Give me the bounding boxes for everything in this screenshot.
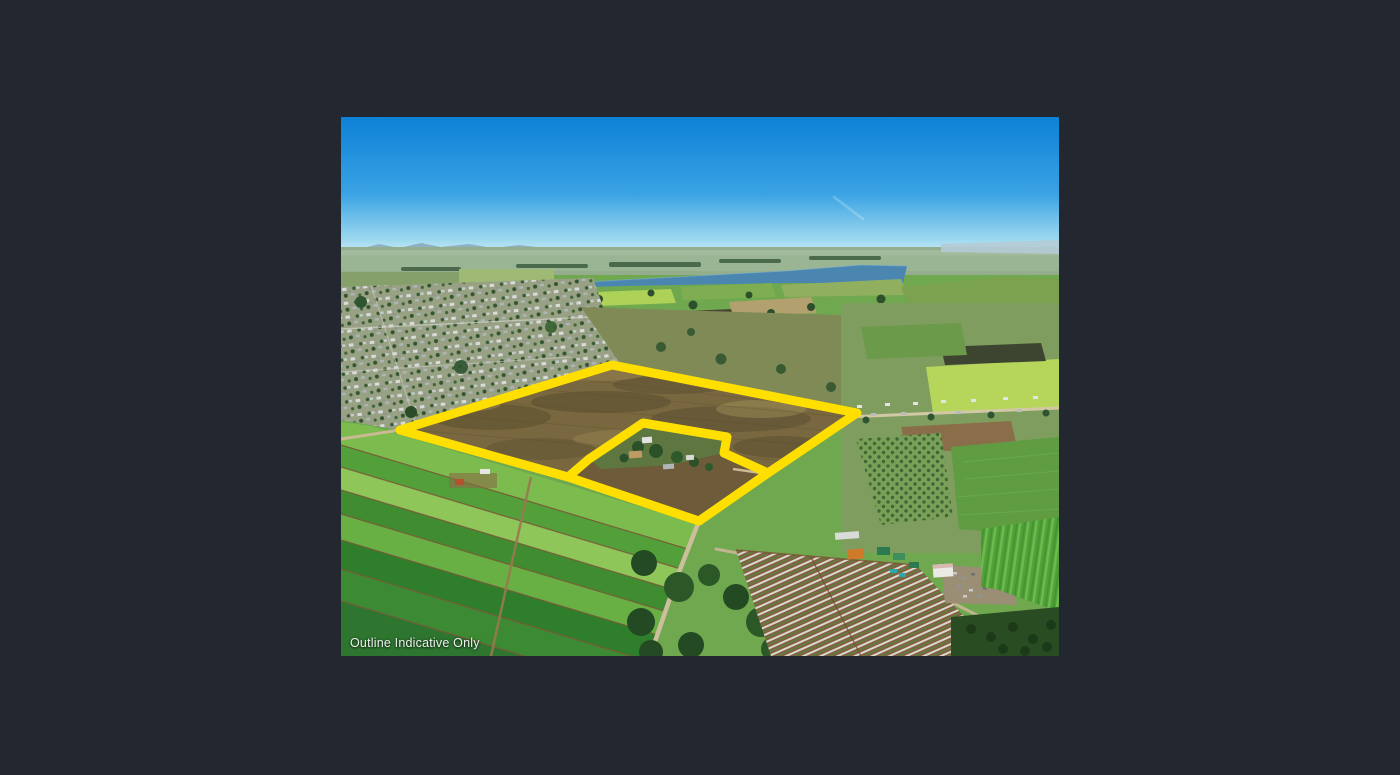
aerial-photo: Outline Indicative Only — [341, 117, 1059, 656]
outline-disclaimer-label: Outline Indicative Only — [350, 637, 480, 650]
page-background: Outline Indicative Only — [0, 0, 1400, 775]
east-farmland — [841, 303, 1059, 553]
sky — [341, 117, 1059, 257]
aerial-photo-graphic — [341, 117, 1059, 656]
